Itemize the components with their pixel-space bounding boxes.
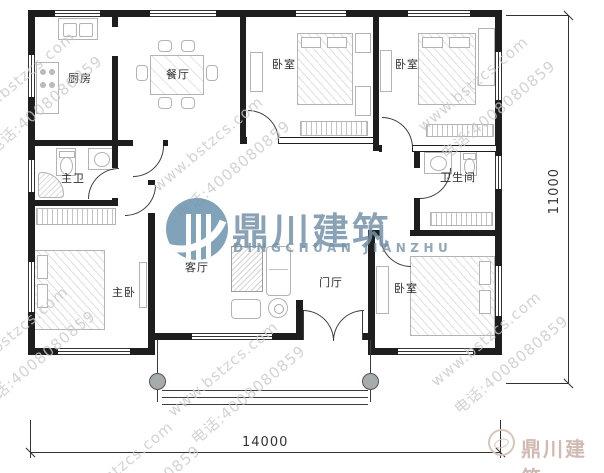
porch-edge-right [370,340,371,402]
door-arc-dining-hall [133,146,164,177]
wall-bedroom2-bottom [412,145,497,152]
desk [376,266,389,314]
window [495,266,502,316]
room-label-living-room: 客厅 [185,259,209,275]
bedside-cabinet [355,33,371,53]
window [28,55,35,97]
tv-cabinet [231,246,263,292]
wall-masterbath-right [112,146,118,168]
dimension-line-right [568,15,569,383]
washbasin [88,148,114,170]
watermark-text: www.bstzcs.com电话:4008080859 [54,407,210,473]
wall-kitchen-bottom [28,140,118,146]
porch-column [149,373,166,390]
room-label-bedroom-bottom: 卧室 [394,280,418,296]
wall-bedroom3-top [410,230,502,236]
pillow [37,255,48,279]
porch-step [162,404,368,405]
wall-bedroom1-bedroom2 [373,17,379,151]
door-arc-entry-left [303,310,334,341]
watermark-text: www.bstzcs.com电话:4008080859 [159,307,315,454]
tv-stand [139,262,147,308]
door-arc-bedroom2 [382,117,413,148]
loveseat [231,299,261,319]
wall-foyer-stub [296,300,303,340]
door-arc-masterbedroom [125,185,156,216]
window [58,348,130,355]
wall-bathroom-left [414,151,420,168]
dining-chair [158,97,172,109]
bedside-cabinet [355,86,371,116]
window [398,348,473,355]
kitchen-stove [36,62,59,114]
window [495,52,502,100]
porch-edge-left [157,340,158,402]
window [28,160,35,192]
door-leaf [362,310,363,340]
wall-dining-bedroom [240,17,246,143]
pillow [327,37,347,48]
door-leaf [303,310,304,340]
dimension-width: 14000 [242,435,288,450]
porch-step [162,390,368,391]
dining-chair [181,97,195,109]
room-label-dining: 餐厅 [166,66,190,82]
desk [380,50,392,92]
wall-bedroom1-bottom [240,137,247,144]
door-arc-bedroom1 [248,110,279,141]
room-label-bathroom: 卫生间 [440,169,476,185]
potted-plant [268,298,288,318]
wall-masterbath-bottom [28,200,118,206]
wall-kitchen-dining [112,17,118,27]
door-arc-masterbath [88,168,119,199]
dingchuan-logo-icon [166,198,228,260]
dining-chair [181,40,195,52]
pillow [449,37,470,48]
window [296,10,346,17]
kitchen-sink [58,18,98,40]
dining-chair [158,40,172,52]
floor-plan-canvas: 厨房 餐厅 卧室 卧室 主卫 卫生间 主卧 客厅 门厅 卧室 14000 110… [0,0,604,473]
wall-masterbedroom-right [148,213,155,355]
pillow [37,284,48,308]
window [192,333,272,340]
porch-column [362,373,379,390]
room-label-master-bedroom: 主卧 [112,284,136,300]
dining-chair [206,65,218,81]
desk [250,52,263,92]
pillow [479,261,491,285]
window [55,10,100,17]
window [495,156,502,189]
pillow [422,37,443,48]
wall-kitchen-dining [112,56,118,146]
dimension-extension [506,15,568,16]
wardrobe [426,124,494,137]
dimension-extension [506,383,568,384]
sofa [266,246,291,296]
corner-logo-icon [488,429,515,456]
wall-foyer-bedroom3 [368,230,375,348]
dining-chair [136,65,148,81]
pillow [301,37,321,48]
window [408,10,470,17]
corner-logo-text: 鼎川建筑 [521,433,604,473]
door-arc-entry-right [333,310,364,341]
pillow [479,290,491,314]
window [28,262,35,312]
dimension-height: 11000 [547,168,562,214]
door-arc-bedroom3 [380,236,411,267]
room-label-bedroom-top-1: 卧室 [272,56,296,72]
room-label-bedroom-top-2: 卧室 [395,56,419,72]
dimension-line-bottom [30,452,500,453]
wall-bedroom1-bottom [278,137,378,144]
room-label-foyer: 门厅 [319,274,343,290]
wardrobe [36,208,116,225]
window [150,10,216,17]
bedside-cabinet [478,28,495,86]
room-label-kitchen: 厨房 [68,70,92,86]
room-label-master-bath: 主卫 [61,170,85,186]
porch-step [162,397,368,398]
wardrobe [300,121,368,136]
linen-cabinet [430,212,493,226]
